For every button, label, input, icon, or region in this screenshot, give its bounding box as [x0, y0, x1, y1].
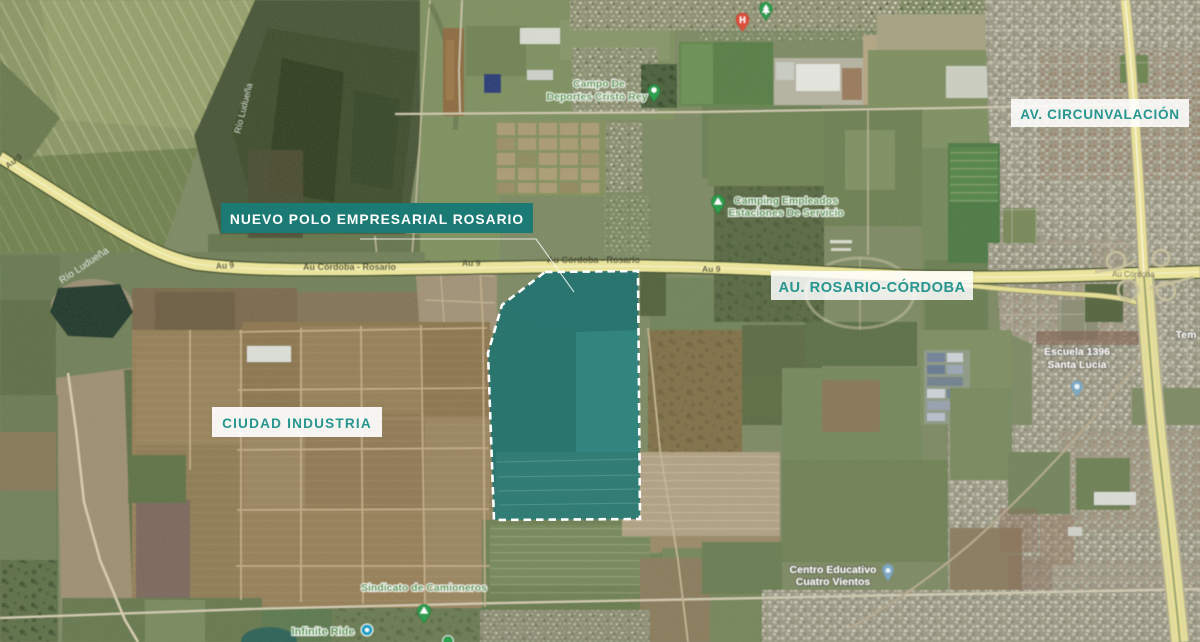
svg-text:Au Córdoba - Rosario: Au Córdoba - Rosario	[547, 255, 641, 265]
svg-text:Tem: Tem	[1176, 329, 1197, 341]
svg-text:AU. ROSARIO-CÓRDOBA: AU. ROSARIO-CÓRDOBA	[778, 278, 965, 296]
svg-text:Au 9: Au 9	[215, 260, 234, 271]
svg-text:AV. CIRCUNVALACIÓN: AV. CIRCUNVALACIÓN	[1020, 107, 1180, 122]
svg-text:Escuela 1396: Escuela 1396	[1044, 346, 1110, 358]
svg-text:CIUDAD INDUSTRIA: CIUDAD INDUSTRIA	[222, 416, 372, 431]
svg-text:Campo De: Campo De	[573, 78, 625, 90]
svg-text:Cuatro Vientos: Cuatro Vientos	[796, 576, 871, 588]
svg-text:NUEVO POLO EMPRESARIAL ROSARIO: NUEVO POLO EMPRESARIAL ROSARIO	[230, 212, 524, 227]
svg-text:Deportes Cristo Rey: Deportes Cristo Rey	[547, 91, 648, 103]
svg-text:Sindicato de Camioneros: Sindicato de Camioneros	[361, 582, 487, 594]
svg-text:Estaciones De Servicio: Estaciones De Servicio	[728, 207, 844, 219]
svg-text:Au 9: Au 9	[462, 258, 481, 268]
svg-text:Centro Educativo: Centro Educativo	[790, 564, 877, 576]
svg-text:H: H	[739, 15, 746, 25]
svg-text:Santa Lucía: Santa Lucía	[1048, 359, 1107, 371]
svg-text:Au Córdoba - Rosario: Au Córdoba - Rosario	[303, 262, 397, 272]
svg-text:Infinite Ride: Infinite Ride	[292, 626, 355, 638]
svg-text:Au 9: Au 9	[702, 264, 721, 274]
svg-text:Au Córdoba: Au Córdoba	[1112, 270, 1155, 279]
svg-text:Camping Empleados: Camping Empleados	[734, 195, 838, 207]
